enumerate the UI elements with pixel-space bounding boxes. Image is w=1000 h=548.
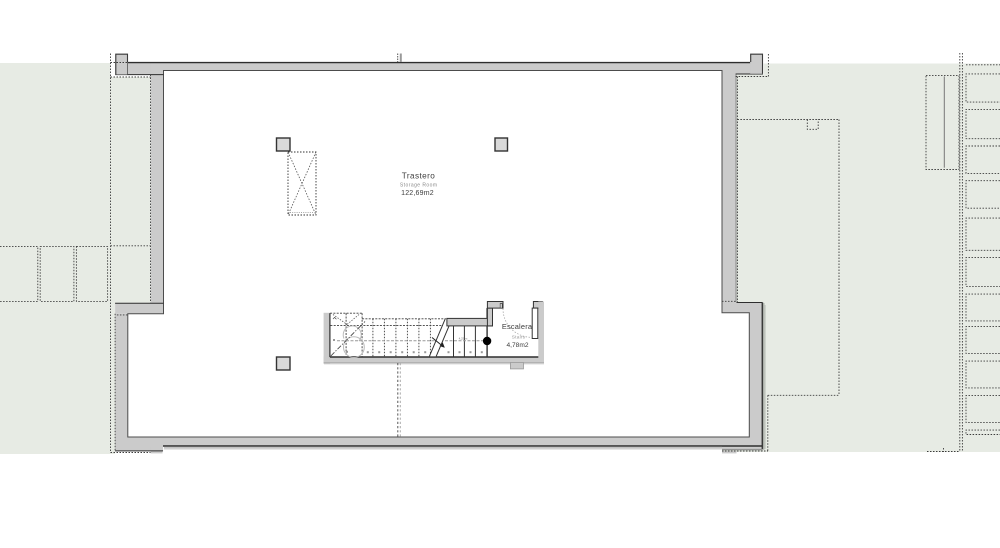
svg-text:Storage Room: Storage Room [400, 182, 438, 188]
svg-text:Stairs: Stairs [512, 335, 526, 341]
svg-text:4,25 m: 4,25 m [459, 337, 468, 341]
svg-text:Escalera: Escalera [502, 322, 533, 331]
svg-text:122,69m2: 122,69m2 [401, 190, 434, 197]
svg-text:Trastero: Trastero [402, 172, 435, 181]
svg-text:4,78m2: 4,78m2 [507, 342, 529, 349]
